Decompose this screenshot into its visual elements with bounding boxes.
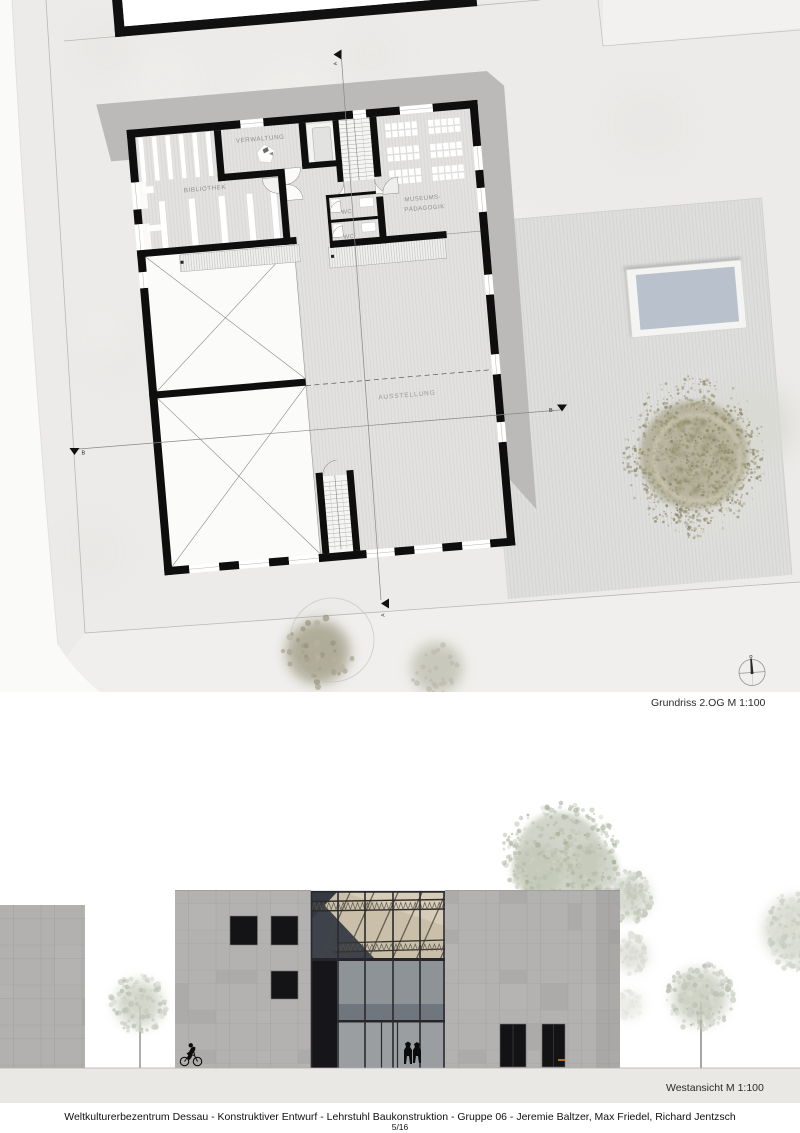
svg-text:B: B [82, 451, 86, 457]
svg-text:B: B [549, 408, 553, 414]
svg-text:Grundriss 2.OG M 1:100: Grundriss 2.OG M 1:100 [651, 697, 766, 709]
svg-text:WC: WC [341, 209, 353, 216]
svg-text:5/16: 5/16 [392, 1122, 409, 1132]
svg-text:Westansicht M 1:100: Westansicht M 1:100 [666, 1082, 764, 1094]
svg-text:WC: WC [343, 234, 355, 241]
